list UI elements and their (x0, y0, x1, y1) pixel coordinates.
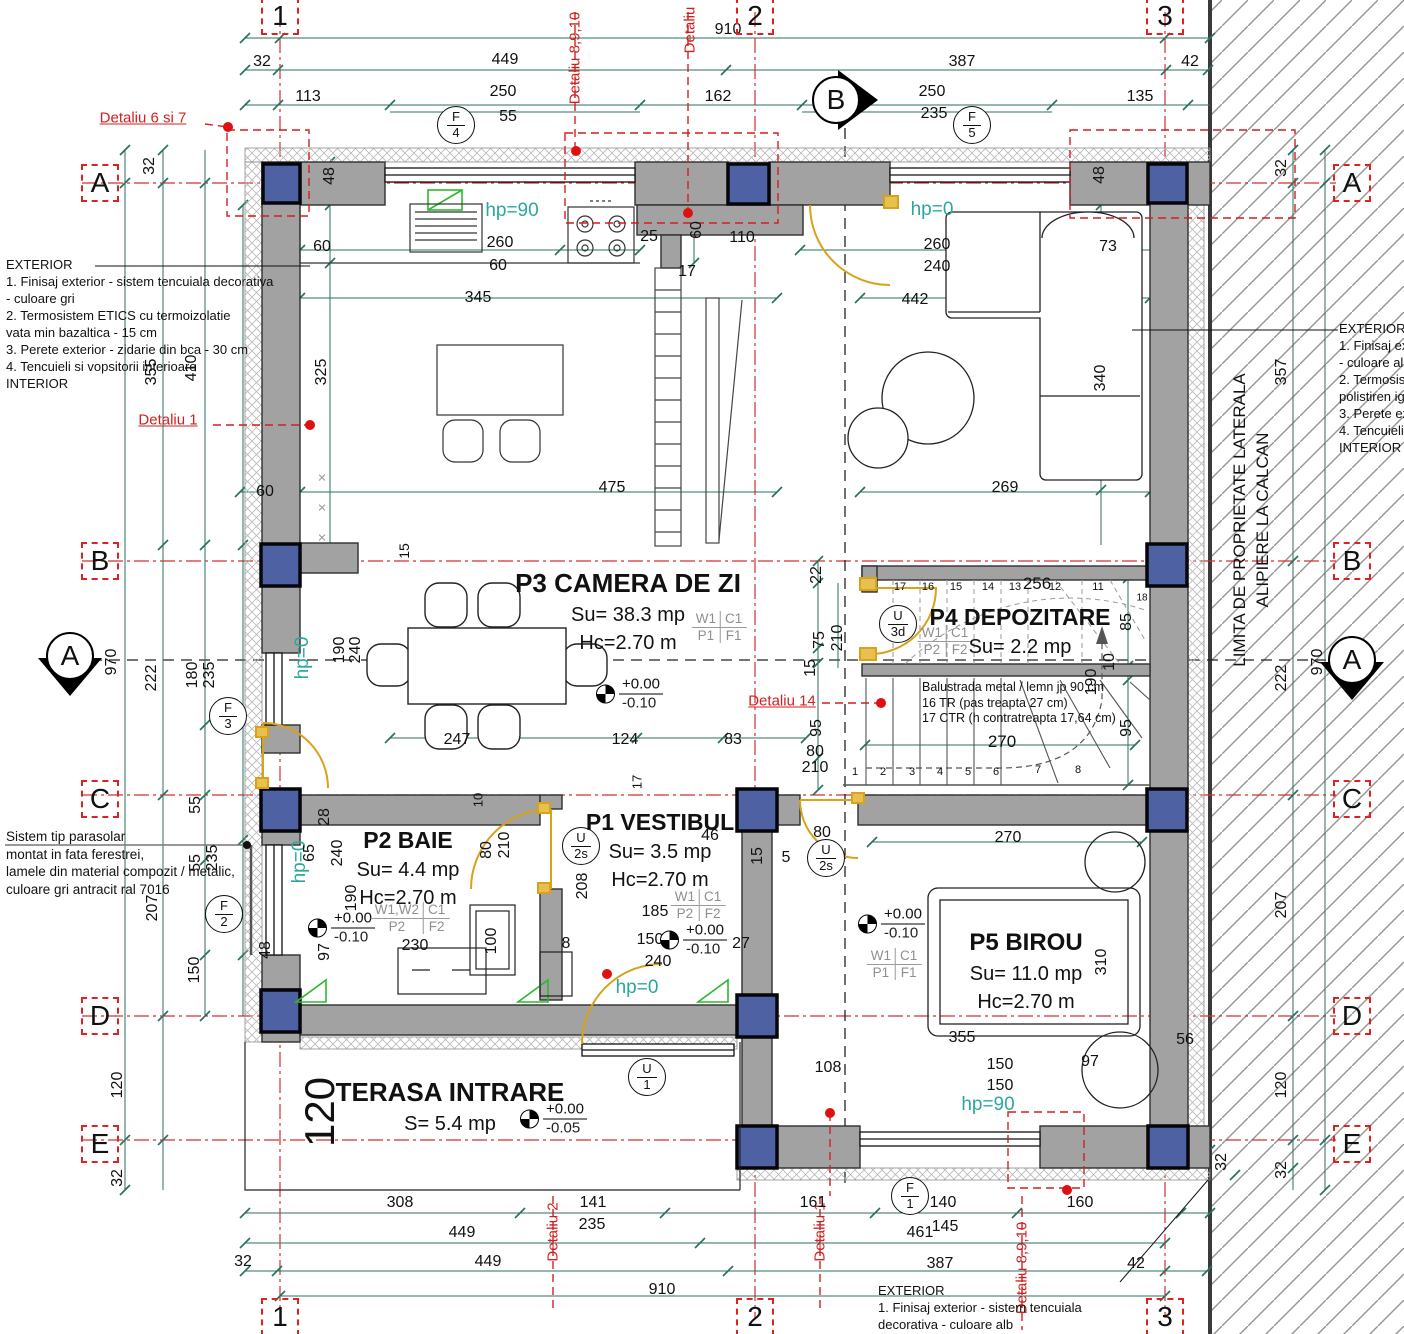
grid-marker-C: C (1333, 780, 1371, 818)
room-area: Su= 4.4 mp (357, 856, 460, 884)
dim-label: 207 (144, 895, 162, 922)
dim-label: 5 (965, 766, 971, 778)
dim-label: 970 (103, 649, 121, 676)
dim-label: 449 (475, 1253, 502, 1271)
dim-label: 270 (988, 732, 1016, 752)
dim-label: 387 (927, 1255, 954, 1273)
dim-label: 15 (749, 847, 767, 865)
dim-label: 42 (1127, 1255, 1145, 1273)
dim-label: 161 (800, 1194, 827, 1212)
dim-label: hp=0 (292, 637, 314, 680)
dim-label: 140 (930, 1194, 957, 1212)
grid-marker-E: E (81, 1125, 119, 1163)
dim-label: 55 (187, 796, 205, 814)
room-title: P5 BIROU (969, 926, 1082, 960)
dim-label: 120 (109, 1072, 127, 1099)
dim-label: 145 (932, 1218, 959, 1236)
dim-label: 13 (1009, 581, 1021, 593)
dim-label: 449 (449, 1224, 476, 1242)
room-height: Hc=2.70 m (969, 988, 1082, 1016)
dim-label: 28 (316, 808, 334, 826)
floorplan-canvas: 910324493874211325055162250235135Detaliu… (0, 0, 1404, 1334)
dim-label: 240 (924, 258, 951, 276)
dim-label: 162 (705, 88, 732, 106)
dim-label: 14 (982, 581, 994, 593)
dim-label: 235 (579, 1216, 606, 1234)
dim-label: 48 (321, 167, 339, 185)
dim-label: hp=90 (961, 1094, 1014, 1116)
dim-label: 235 (921, 105, 948, 123)
door-tag-U3d: U3d (879, 605, 917, 643)
dim-label: Detaliu 1 (138, 412, 197, 429)
dim-label: 7 (1035, 764, 1041, 776)
dim-label: 260 (487, 234, 514, 252)
dim-label: Detaliu 8,9,10 (567, 12, 584, 105)
dim-label: 8 (562, 935, 571, 953)
dim-label: 108 (815, 1059, 842, 1077)
dim-label: 256 (1023, 574, 1051, 594)
dim-label: 442 (902, 291, 929, 309)
room-height: Hc=2.70 m (357, 884, 460, 912)
dim-label: 22 (808, 566, 826, 584)
dim-label: 250 (490, 83, 517, 101)
dim-label: 32 (1273, 1161, 1291, 1179)
room-label-p2: P2 BAIE Su= 4.4 mp Hc=2.70 m (357, 824, 460, 912)
grid-marker-D: D (1333, 997, 1371, 1035)
parasolar-note: Sistem tip parasolarmontat in fata feres… (6, 828, 235, 898)
dim-label: hp=0 (616, 977, 659, 999)
dim-label: 6 (993, 766, 999, 778)
grid-marker-B: B (1333, 542, 1371, 580)
exterior-note-bottom: EXTERIOR1. Finisaj exterior - sistem ten… (878, 1282, 1082, 1333)
dim-label: 345 (465, 289, 492, 307)
dim-label: 95 (1118, 719, 1136, 737)
dim-label: 124 (612, 731, 639, 749)
dim-label: 207 (1273, 892, 1291, 919)
dim-label: 15 (802, 659, 820, 677)
room-title: P3 CAMERA DE ZI (515, 565, 741, 601)
dim-label: 83 (724, 731, 742, 749)
dim-label: 12 (1049, 581, 1061, 593)
level-marker: +0.00-0.10 (660, 922, 727, 959)
room-area: Su= 38.3 mp (515, 601, 741, 629)
dim-label: 27 (732, 935, 750, 953)
dim-label: 80 (478, 841, 496, 859)
window-tag-F3: F3 (209, 697, 247, 735)
label-layer: 910324493874211325055162250235135Detaliu… (0, 0, 1404, 1334)
dim-label: 65 (301, 844, 319, 862)
dim-label: 18 (1136, 593, 1147, 604)
dim-label: 210 (829, 625, 847, 652)
dim-label: 75 (811, 631, 829, 649)
finish-table: W1C1P1F1 (867, 948, 922, 980)
dim-label: 150 (987, 1077, 1014, 1095)
dim-label: 15 (396, 543, 412, 559)
dim-label: 260 (924, 236, 951, 254)
dim-label: 3 (909, 766, 915, 778)
dim-label: 110 (729, 229, 755, 247)
dim-label: 355 (949, 1029, 976, 1047)
dim-label: 10 (471, 793, 486, 807)
dim-label: 113 (295, 88, 321, 106)
dim-label: 25 (640, 228, 658, 246)
dim-label: 17 (678, 263, 696, 281)
dim-label: 210 (802, 759, 829, 777)
dim-label: 308 (387, 1194, 414, 1212)
dim-label: 32 (1273, 159, 1291, 177)
dim-label: 48 (257, 941, 275, 959)
dim-label: 325 (313, 359, 331, 386)
dim-label: 5 (782, 849, 791, 867)
property-line-label-2: ALIPIERE LA CALCAN (1253, 433, 1273, 608)
dim-label: 60 (688, 221, 706, 239)
room-title: P2 BAIE (357, 824, 460, 856)
window-tag-F2: F2 (205, 895, 243, 933)
dim-label: 185 (642, 903, 669, 921)
level-marker: +0.00-0.10 (858, 906, 925, 943)
door-tag-U1: U1 (628, 1058, 666, 1096)
exterior-note-right: EXTERIOR1. Finisaj exte- culoare alb2. T… (1339, 320, 1404, 456)
dim-label: 8 (1075, 764, 1081, 776)
grid-marker-2: 2 (736, 1298, 774, 1334)
grid-marker-C: C (81, 780, 119, 818)
dim-label: 210 (496, 832, 514, 859)
room-title: P1 VESTIBUL (586, 806, 734, 838)
dim-label: 32 (253, 53, 271, 71)
dim-label: Detaliu (682, 7, 699, 54)
dim-label: 910 (649, 1281, 676, 1299)
dim-label: 150 (987, 1056, 1014, 1074)
dim-label: 100 (483, 928, 501, 955)
balustrade-note: Balustrada metal / lemn jp 90 cm16 TR (p… (922, 680, 1116, 727)
grid-marker-2: 2 (736, 0, 774, 35)
room-label-terasa: TERASA INTRARE S= 5.4 mp (336, 1074, 565, 1138)
grid-marker-1: 1 (261, 0, 299, 35)
room-area: Su= 2.2 mp (929, 633, 1110, 661)
dim-label: 2 (880, 766, 886, 778)
grid-marker-B: B (81, 542, 119, 580)
dim-label: 32 (234, 1253, 252, 1271)
room-label-p4: P4 DEPOZITARE Su= 2.2 mp (929, 601, 1110, 661)
dim-label: 42 (1181, 53, 1199, 71)
grid-marker-3: 3 (1146, 1298, 1184, 1334)
dim-label: 85 (1118, 613, 1136, 631)
door-tag-U2s: U2s (807, 839, 845, 877)
dim-label: 60 (313, 238, 331, 256)
dim-label: 475 (599, 479, 626, 497)
dim-label: 222 (143, 665, 161, 692)
room-label-p5: P5 BIROU Su= 11.0 mp Hc=2.70 m (969, 926, 1082, 1016)
dim-label: 17 (894, 581, 906, 593)
dim-label: 32 (1213, 1153, 1231, 1171)
dim-label: 150 (186, 957, 204, 984)
dim-label: 120 (1273, 1072, 1291, 1099)
dim-label: 222 (1273, 665, 1291, 692)
dim-label: 60 (256, 483, 274, 501)
dim-label: 230 (402, 937, 429, 955)
room-height: Hc=2.70 m (515, 629, 741, 657)
dim-label: 73 (1099, 238, 1117, 256)
dim-label: 55 (499, 108, 517, 126)
dim-label: 235 (201, 662, 219, 689)
dim-label: 160 (1067, 1194, 1094, 1212)
dim-label: 16 (922, 581, 934, 593)
window-tag-F5: F5 (953, 106, 991, 144)
dim-label: 15 (950, 581, 962, 593)
dim-label: 56 (1176, 1031, 1194, 1049)
dim-label: hp=0 (911, 199, 954, 221)
room-area: S= 5.4 mp (336, 1110, 565, 1138)
dim-label: 461 (907, 1224, 934, 1242)
grid-marker-D: D (81, 997, 119, 1035)
room-title: P4 DEPOZITARE (929, 601, 1110, 633)
window-tag-F4: F4 (437, 106, 475, 144)
dim-label: 240 (329, 840, 347, 867)
dim-label: 180 (184, 662, 202, 689)
level-marker: +0.00-0.10 (308, 910, 375, 947)
room-label-p1: P1 VESTIBUL Su= 3.5 mp Hc=2.70 m (586, 806, 734, 894)
dim-label: × (318, 500, 327, 517)
dim-label: 135 (1127, 88, 1154, 106)
dim-label: 48 (1091, 166, 1109, 184)
room-area: Su= 11.0 mp (969, 960, 1082, 988)
grid-marker-A: A (1333, 164, 1371, 202)
dim-label: 17 (630, 775, 645, 789)
window-tag-F1: F1 (891, 1177, 929, 1215)
dim-label: × (318, 530, 327, 547)
grid-marker-3: 3 (1146, 0, 1184, 35)
dim-label: 357 (1273, 359, 1291, 386)
dim-label: × (318, 470, 327, 487)
level-marker: +0.00-0.10 (596, 676, 663, 713)
dim-label: Detaliu 6 si 7 (100, 110, 187, 127)
dim-label: 60 (489, 257, 507, 275)
property-line-label: LIMITA DE PROPRIETATE LATERALA (1230, 373, 1250, 666)
grid-marker-1: 1 (261, 1298, 299, 1334)
dim-label: hp=90 (485, 200, 538, 222)
dim-label: 449 (492, 51, 519, 69)
dim-label: 310 (1093, 949, 1111, 976)
dim-label: 250 (919, 83, 946, 101)
exterior-note-left: EXTERIOR1. Finisaj exterior - sistem ten… (6, 256, 273, 392)
dim-label: 32 (141, 157, 159, 175)
dim-label: 269 (992, 479, 1019, 497)
room-title: TERASA INTRARE (336, 1074, 565, 1110)
dim-label: 141 (580, 1194, 607, 1212)
room-area: Su= 3.5 mp (586, 838, 734, 866)
dim-label: 1 (852, 766, 858, 778)
dim-label: 387 (949, 53, 976, 71)
dim-label: 11 (1092, 581, 1103, 593)
room-label-p3: P3 CAMERA DE ZI Su= 38.3 mp Hc=2.70 m (515, 565, 741, 657)
dim-label: Detaliu 14 (748, 693, 816, 710)
dim-label: 97 (1081, 1053, 1099, 1071)
dim-label: 95 (808, 719, 826, 737)
dim-label: Detaliu 2 (545, 1202, 562, 1261)
dim-label: 240 (347, 637, 365, 664)
dim-label: 340 (1092, 365, 1110, 392)
dim-label: 247 (444, 731, 471, 749)
grid-marker-E: E (1333, 1125, 1371, 1163)
room-height: Hc=2.70 m (586, 866, 734, 894)
dim-label: 4 (937, 766, 943, 778)
grid-marker-A: A (81, 164, 119, 202)
dim-label: 270 (995, 829, 1022, 847)
dim-label: 32 (109, 1169, 127, 1187)
